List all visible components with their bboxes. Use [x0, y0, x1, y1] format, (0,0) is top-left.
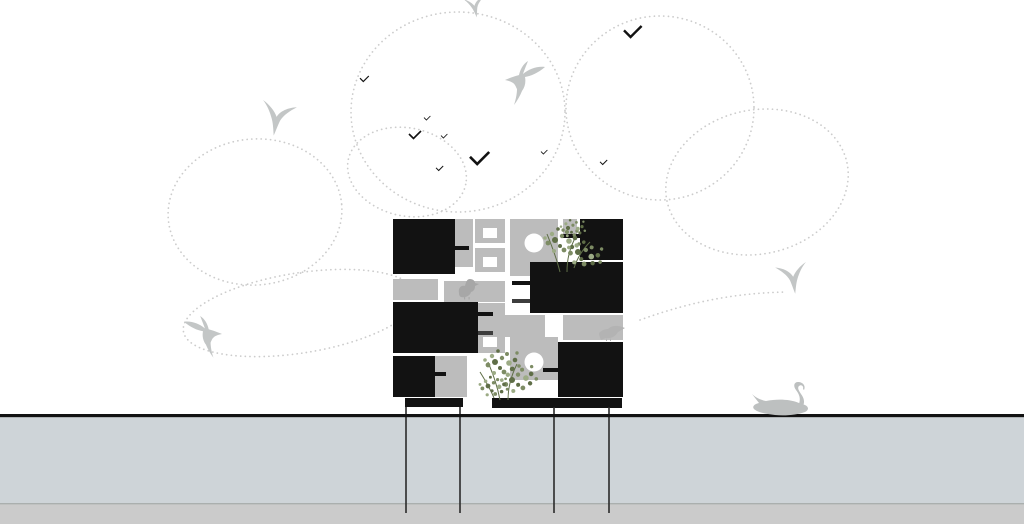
- strata-divider: [0, 503, 1024, 504]
- square-opening: [483, 257, 497, 267]
- flight-path-loop: [351, 12, 565, 212]
- hummingbird-silhouette: [505, 61, 545, 105]
- round-opening: [525, 353, 544, 372]
- terrace-block: [393, 279, 438, 300]
- distant-bird-icon: [600, 160, 607, 165]
- flight-path-loop: [652, 92, 862, 271]
- distant-bird-icon: [424, 116, 430, 120]
- ground-line: [0, 414, 1024, 417]
- distant-bird-icon: [409, 131, 421, 139]
- terrace-block: [455, 219, 473, 267]
- hummingbird-silhouette: [184, 316, 222, 358]
- ground: [0, 407, 1024, 524]
- nest-box: [393, 356, 435, 397]
- base-plinth: [405, 398, 463, 407]
- swallow-silhouette: [256, 100, 297, 139]
- bird-tower: [393, 219, 623, 408]
- round-opening: [525, 234, 544, 253]
- flight-path-arc: [640, 292, 786, 320]
- distant-bird-icon: [541, 150, 547, 154]
- nest-box: [580, 219, 623, 260]
- perch: [435, 372, 446, 376]
- perch: [563, 234, 580, 238]
- square-opening: [483, 228, 497, 238]
- swan-silhouette: [752, 382, 808, 415]
- plant-foliage: [479, 376, 509, 397]
- perch: [455, 246, 469, 250]
- nest-box: [393, 302, 478, 353]
- swallow-silhouette: [463, 0, 487, 19]
- terrace-block: [435, 356, 467, 397]
- terrace-block: [505, 315, 545, 337]
- perch: [512, 281, 530, 285]
- perch: [543, 368, 558, 372]
- flight-path-loop: [162, 132, 348, 293]
- flight-path-loop: [339, 116, 475, 227]
- perch: [512, 299, 530, 303]
- section-drawing-canvas: [0, 0, 1024, 524]
- soil-stratum: [0, 504, 1024, 524]
- base-plinth: [492, 398, 622, 408]
- distant-bird-icon: [441, 134, 447, 138]
- nest-box: [530, 262, 623, 313]
- flight-path-loop: [566, 16, 754, 200]
- nest-box: [558, 342, 623, 397]
- nest-box: [393, 219, 455, 274]
- distant-bird-icon: [436, 166, 443, 171]
- swallow-silhouette: [775, 262, 811, 296]
- perch: [478, 312, 493, 316]
- distant-bird-icon: [470, 152, 489, 164]
- perch: [478, 331, 493, 335]
- water-stratum: [0, 417, 1024, 503]
- section-drawing: [0, 0, 1024, 524]
- distant-bird-icon: [624, 26, 642, 37]
- square-opening: [483, 337, 497, 347]
- distant-bird-icon: [360, 76, 369, 82]
